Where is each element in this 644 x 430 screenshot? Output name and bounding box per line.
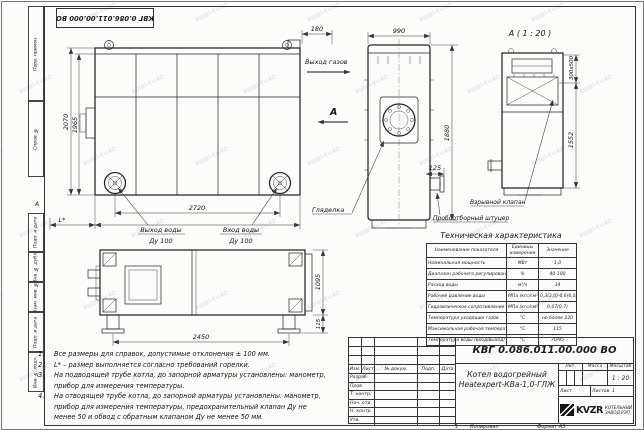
dim-2070: 2070 — [62, 114, 70, 131]
title-block: Изм. Лист № докум. Подп. Дата Разраб. Пр… — [348, 337, 634, 424]
format-label: Формат А3 — [537, 424, 565, 430]
tb-col-data: Дата — [440, 365, 456, 374]
label-sight-glass: Гляделка — [312, 206, 344, 214]
tb-col-list: Лист — [362, 365, 375, 374]
tb-row-razrab: Разраб. — [349, 374, 375, 383]
note-item-3: 3.На подводящей трубе котла, до запорной… — [38, 370, 330, 391]
dim-125: 125 — [429, 164, 441, 172]
spec-row: Гидравлическое сопротивление котлаМПа (к… — [427, 302, 577, 313]
tb-doc-number: КВГ 0.086.011.00.000 ВО — [456, 338, 633, 364]
tb-scale-value: 1 : 20 — [608, 371, 633, 386]
copy-label: Копировал — [470, 424, 499, 430]
company-name: КОТЕЛЬНЫЙ ЗАВОД РЭП — [605, 405, 632, 415]
zone-number: 1 — [455, 424, 458, 430]
dim-1095: 1095 — [314, 274, 322, 291]
margin-box-podp-data-2: Подп. и дата — [28, 312, 44, 352]
detail-dimensions: 300х500 1552 — [559, 55, 580, 188]
front-view-dimensions: 2070 1965 2720 L* 180 — [50, 25, 332, 229]
water-inlet-flange — [270, 173, 291, 194]
tb-row-prov: Пров. — [349, 383, 375, 392]
kvzr-logo-icon — [560, 404, 574, 416]
spec-row: Расход водым³/ч34 — [427, 280, 577, 291]
dim-l-star: L* — [59, 216, 67, 224]
margin-box-vzam-inv: Взам. инв. № — [28, 282, 44, 312]
drawing-sheet: kotel-kv.kzkotel-kv.kzkotel-kv.kzkotel-k… — [0, 0, 644, 430]
dim-1552: 1552 — [567, 132, 575, 149]
dim-990: 990 — [393, 27, 405, 35]
tb-col-podp: Подп. — [418, 365, 440, 374]
spec-row: Температура уходящих газов°Сне более 220 — [427, 313, 577, 324]
note-item-2: 2.L* – размер выполняется согласно требо… — [38, 360, 330, 371]
detail-view-a: А ( 1 : 20 ) 300х500 1552 — [480, 15, 644, 230]
boiler-top-body — [88, 250, 312, 333]
spec-table-block: Техническая характеристика Наименование … — [426, 231, 576, 346]
spec-row: Максимальная рабочая температура воды°С1… — [427, 324, 577, 335]
dim-300x500: 300х500 — [569, 55, 575, 80]
tb-mass-label: Масса — [583, 363, 608, 371]
tb-col-izm: Изм. — [349, 365, 362, 374]
spec-table: Наименование показателя Единицы измерени… — [426, 243, 577, 346]
tb-row-nachotd: Нач. отд. — [349, 400, 375, 409]
dim-115: 115 — [316, 318, 322, 329]
detail-title: А ( 1 : 20 ) — [508, 29, 551, 38]
dim-2450: 2450 — [193, 333, 210, 341]
tb-sheets-label: Листов 1 — [591, 386, 633, 397]
spec-col-units: Единицы измерения — [507, 244, 539, 258]
tb-sheet-label: Лист — [559, 386, 591, 397]
tb-col-docnum: № докум. — [375, 365, 418, 374]
note-item-4: 4.На отводящей трубе котла, до запорной … — [38, 391, 330, 423]
top-view: 2450 1095 115 — [70, 240, 334, 355]
tb-row-tkontr: Т. контр. — [349, 391, 375, 400]
boiler-side-body — [364, 39, 444, 228]
dim-2720: 2720 — [189, 204, 206, 212]
spec-row: Номинальная мощностьМВт1,0 — [427, 258, 577, 269]
label-water-out: Выход воды — [140, 226, 181, 234]
detail-body — [488, 49, 563, 195]
water-outlet-flange — [105, 173, 126, 194]
spec-col-value: Значение — [539, 244, 577, 258]
notes-block: 1.Все размеры для справок, допустимые от… — [38, 349, 330, 423]
spec-col-name: Наименование показателя — [427, 244, 507, 258]
tb-row-utv: Утв. — [349, 417, 375, 426]
spec-row: Диапазон рабочего регулирования%40-100 — [427, 269, 577, 280]
spec-row: Рабочее давление водыМПа (кгс/см²)0,3(3,… — [427, 291, 577, 302]
top-stamp-doc-number: КВГ 0.086.011.00.000 ВО — [56, 14, 154, 22]
tb-row-nkontr: Н. контр. — [349, 408, 375, 417]
tb-lit-label: Лит. — [559, 363, 583, 371]
spec-table-title: Техническая характеристика — [426, 231, 576, 240]
side-view-dimensions: 990 1880 125 — [368, 27, 458, 220]
dim-1965: 1965 — [71, 117, 79, 134]
tb-company: KVZR КОТЕЛЬНЫЙ ЗАВОД РЭП — [559, 397, 633, 423]
kvzr-logo-text: KVZR — [576, 405, 603, 416]
tb-scale-label: Масштаб — [608, 363, 633, 371]
label-water-in: Вход воды — [223, 226, 259, 234]
note-item-1: 1.Все размеры для справок, допустимые от… — [38, 349, 330, 360]
boiler-front-body — [80, 40, 300, 195]
tb-product-title: Котел водогрейный Heatexpert-КВа-1,0-ГЛЖ — [456, 363, 559, 423]
top-view-dimensions: 2450 1095 115 — [113, 250, 328, 346]
dim-1880: 1880 — [443, 125, 451, 142]
